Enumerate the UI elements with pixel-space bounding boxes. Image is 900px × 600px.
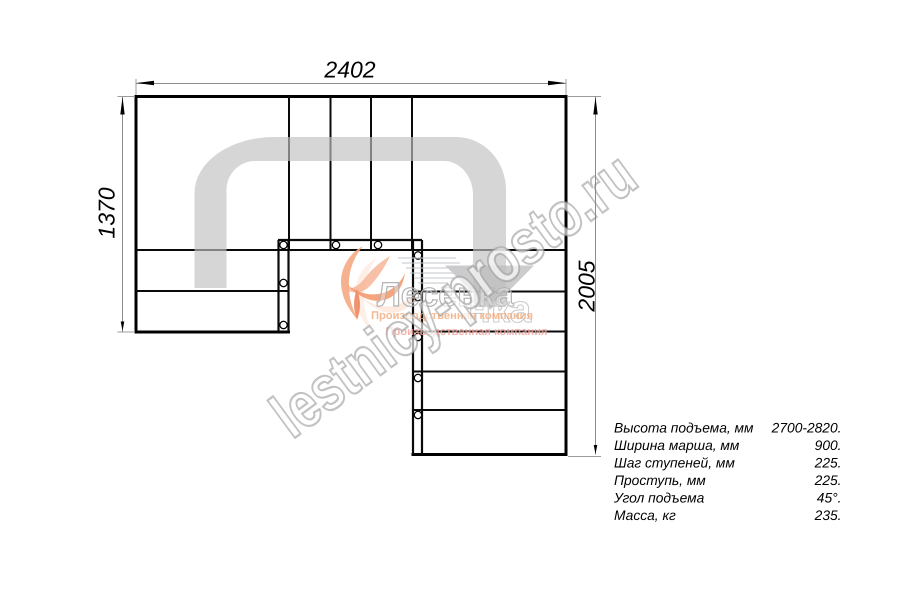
svg-text:Угол подъема: Угол подъема	[613, 491, 705, 506]
svg-text:2402: 2402	[323, 57, 375, 83]
svg-text:Проступь, мм: Проступь, мм	[614, 473, 706, 488]
svg-text:Шаг ступеней, мм: Шаг ступеней, мм	[614, 456, 735, 471]
svg-text:45°.: 45°.	[817, 491, 842, 506]
svg-text:1370: 1370	[94, 187, 120, 238]
svg-text:2700-2820.: 2700-2820.	[771, 421, 842, 436]
svg-text:Масса, кг: Масса, кг	[614, 508, 676, 523]
svg-text:225.: 225.	[814, 473, 842, 488]
svg-text:235.: 235.	[814, 508, 842, 523]
svg-text:Высота подъема, мм: Высота подъема, мм	[614, 421, 754, 436]
svg-text:Ширина марша, мм: Ширина марша, мм	[614, 438, 740, 453]
svg-text:225.: 225.	[814, 456, 842, 471]
svg-text:900.: 900.	[815, 438, 842, 453]
svg-text:2005: 2005	[574, 260, 600, 312]
